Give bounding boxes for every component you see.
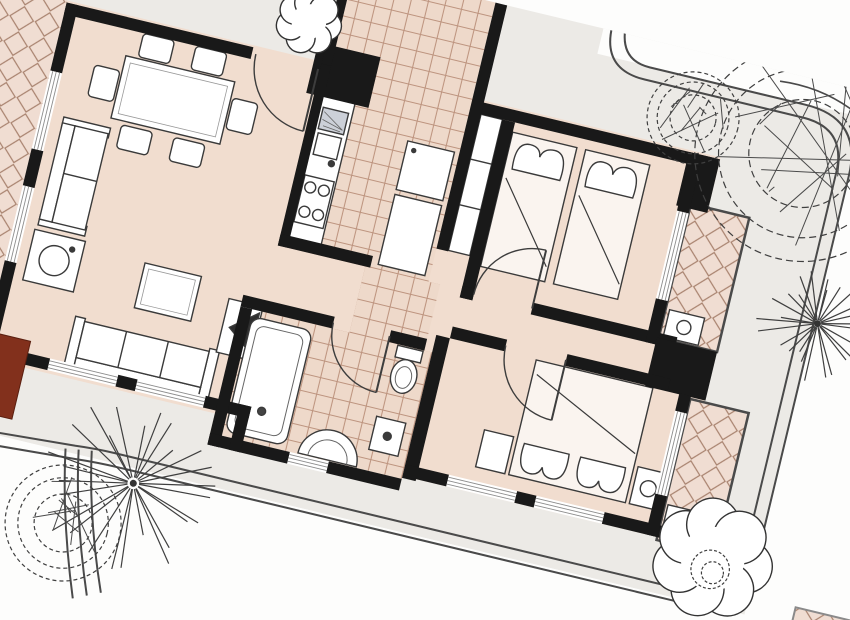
floorplan-scan	[0, 0, 850, 620]
fridge-hinge	[411, 148, 416, 153]
floorplan-drawing	[0, 0, 850, 620]
sink-bowl	[313, 133, 341, 160]
side-table-dot	[69, 247, 75, 253]
sink-faucet	[328, 160, 335, 167]
side-table	[23, 229, 86, 292]
